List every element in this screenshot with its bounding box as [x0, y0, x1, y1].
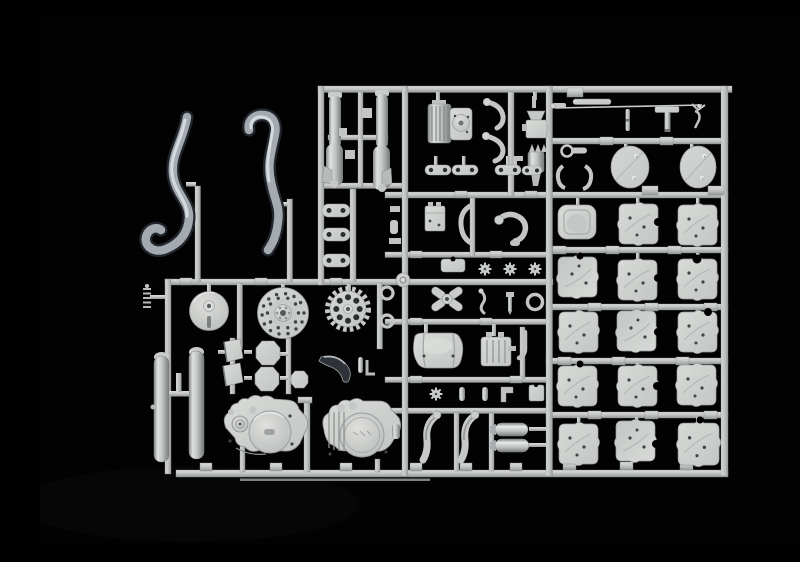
seat-pad: [558, 205, 596, 239]
fuel-tank: [413, 333, 462, 368]
fork-slider-right: [189, 347, 204, 459]
cylinder-head: [450, 108, 472, 140]
brake-drum: [190, 292, 229, 331]
brake-disc: [258, 288, 309, 339]
hub-knob: [396, 273, 410, 287]
model-kit-sprue-photo: [40, 16, 800, 546]
cylinder-block: [428, 100, 451, 143]
fork-brace-plates: [322, 204, 350, 267]
flat-plate: [441, 257, 465, 273]
battery: [425, 202, 445, 231]
